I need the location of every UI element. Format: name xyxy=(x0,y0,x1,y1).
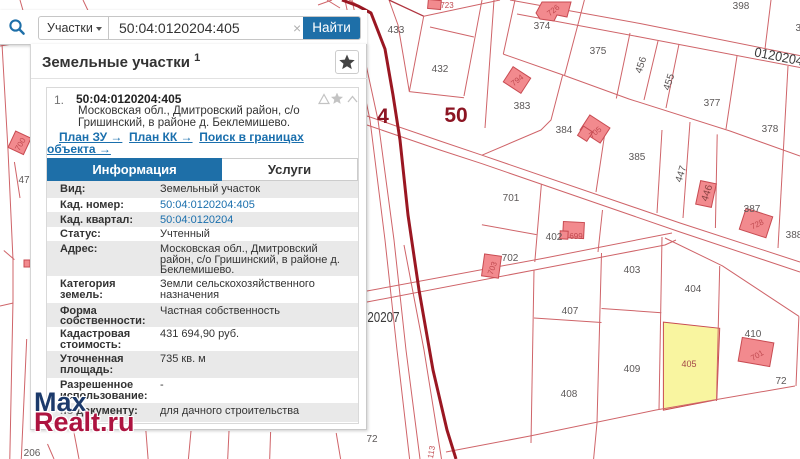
svg-text:456: 456 xyxy=(634,55,650,75)
svg-text:72: 72 xyxy=(775,376,787,387)
svg-text:384: 384 xyxy=(556,125,573,136)
svg-text:723: 723 xyxy=(440,1,454,10)
svg-text:455: 455 xyxy=(662,72,678,92)
svg-text:378: 378 xyxy=(762,124,779,135)
svg-text:403: 403 xyxy=(624,265,641,276)
svg-text:398: 398 xyxy=(733,1,750,12)
svg-text:387: 387 xyxy=(744,204,761,215)
svg-text:405: 405 xyxy=(681,359,696,369)
svg-text:409: 409 xyxy=(624,364,641,375)
svg-text:385: 385 xyxy=(629,152,646,163)
svg-text:701: 701 xyxy=(503,193,520,204)
svg-text:388: 388 xyxy=(786,230,800,241)
svg-text:410: 410 xyxy=(745,329,762,340)
svg-text:407: 407 xyxy=(562,306,579,317)
svg-text:433: 433 xyxy=(388,25,405,36)
svg-text:699: 699 xyxy=(569,232,583,241)
svg-text:374: 374 xyxy=(534,21,551,32)
svg-text:402: 402 xyxy=(546,232,563,243)
svg-text:0120204: 0120204 xyxy=(753,44,800,68)
svg-text:47: 47 xyxy=(18,175,30,186)
svg-text:4: 4 xyxy=(377,105,389,128)
svg-text:113: 113 xyxy=(426,444,437,459)
svg-text:50: 50 xyxy=(444,104,467,127)
svg-text:432: 432 xyxy=(432,64,449,75)
svg-text:377: 377 xyxy=(704,98,721,109)
svg-text:33: 33 xyxy=(795,23,800,34)
svg-text:375: 375 xyxy=(590,46,607,57)
svg-text:404: 404 xyxy=(685,284,702,295)
svg-text:206: 206 xyxy=(24,448,41,459)
svg-text:702: 702 xyxy=(502,253,519,264)
svg-text:383: 383 xyxy=(514,101,531,112)
svg-text:408: 408 xyxy=(561,389,578,400)
svg-text:72: 72 xyxy=(366,434,378,445)
